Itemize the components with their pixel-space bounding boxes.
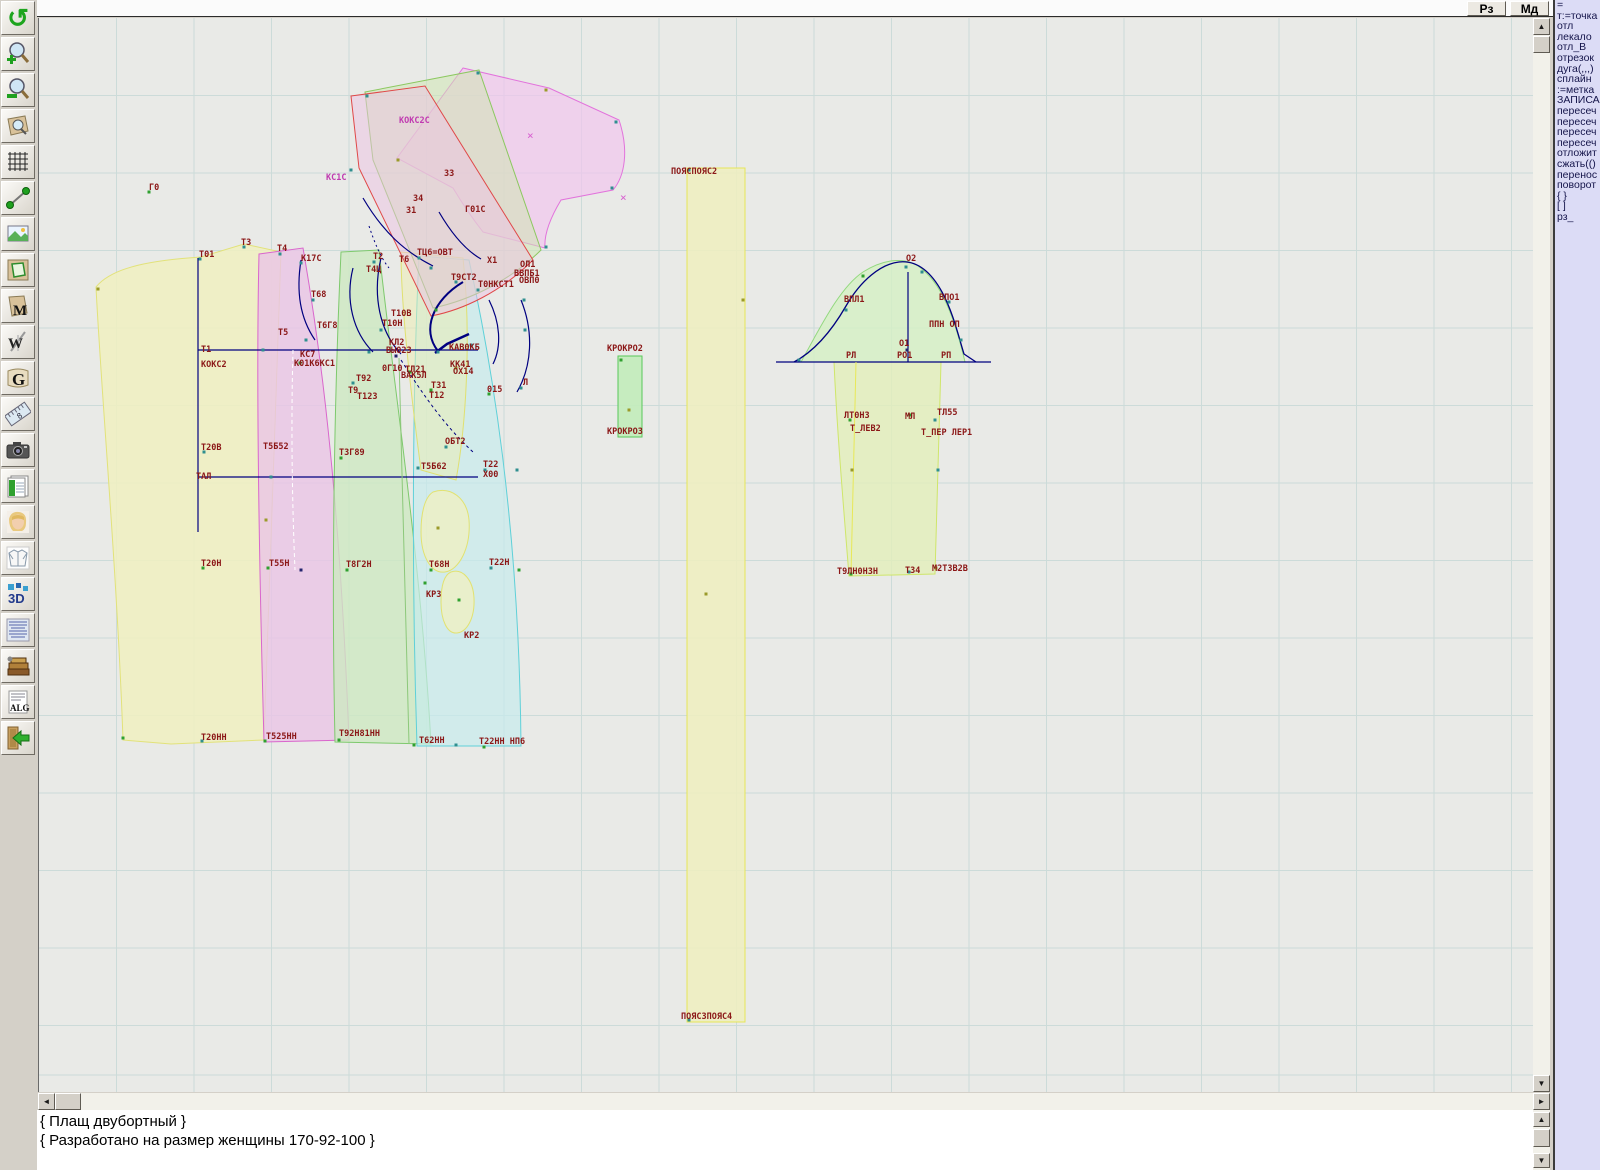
pattern-label: ТЗ4: [905, 566, 920, 576]
zoom-in-button[interactable]: [1, 37, 35, 71]
program-console[interactable]: { Плащ двубортный } { Разработано на раз…: [37, 1110, 1533, 1170]
pattern-label: Г0: [149, 183, 159, 193]
canvas-vertical-scrollbar[interactable]: ▲ ▼: [1533, 18, 1550, 1092]
zoom-piece-icon: [5, 113, 31, 139]
console-scroll-up-button[interactable]: ▲: [1533, 1112, 1550, 1127]
point-marker[interactable]: [455, 744, 458, 747]
alg-document-button[interactable]: ALG: [1, 685, 35, 719]
pattern-label: РО1: [897, 351, 912, 361]
point-marker[interactable]: [350, 169, 353, 172]
pattern-label: КРОКРО2: [607, 344, 643, 354]
pattern-label: ОБТ2: [445, 437, 465, 447]
point-marker[interactable]: [905, 266, 908, 269]
pattern-label: О2: [906, 254, 916, 264]
pattern-label: Т92: [356, 374, 371, 384]
horizontal-scroll-thumb[interactable]: [55, 1093, 81, 1110]
pattern-label: З1: [406, 206, 416, 216]
pattern-label: Т4Ц: [366, 265, 381, 275]
pattern-label: ТЛ55: [937, 408, 957, 418]
measure-segment-icon: [5, 185, 31, 211]
point-marker[interactable]: [615, 121, 618, 124]
pattern-label: Т5: [278, 328, 288, 338]
pattern-label: Т22Н: [489, 558, 509, 568]
image-view-button[interactable]: [1, 217, 35, 251]
pattern-label: Т12: [429, 391, 444, 401]
spreadsheet-icon: [5, 473, 31, 499]
point-marker[interactable]: [437, 351, 440, 354]
pattern-label: Т68Н: [429, 560, 449, 570]
pattern-label: Т20Н: [201, 559, 221, 569]
pattern-drawing: ××Г0Т01Т3Т4К17СКС1СКОКС2СЗ3З4З1Г01СТ2Т6Т…: [39, 18, 1534, 1092]
scroll-down-button[interactable]: ▼: [1533, 1075, 1550, 1092]
sidebar-command-item[interactable]: пересеч: [1555, 106, 1600, 117]
alg-document-icon: ALG: [5, 689, 31, 715]
point-marker[interactable]: [934, 419, 937, 422]
camera-icon: [5, 437, 31, 463]
command-sidebar: =т:=точкаотллекалоотл_Вотрезокдуга(,,,)с…: [1553, 0, 1600, 1170]
svg-text:M: M: [13, 303, 27, 319]
pattern-label: КР2: [464, 631, 479, 641]
pattern-piece-pocket-lower[interactable]: [441, 571, 474, 633]
console-scroll-down-button[interactable]: ▼: [1533, 1153, 1550, 1168]
console-scrollbar[interactable]: ▲ ▼: [1533, 1110, 1550, 1170]
rz-mode-button[interactable]: Рз: [1467, 1, 1506, 16]
point-marker[interactable]: [262, 349, 265, 352]
svg-text:3D: 3D: [8, 591, 25, 606]
pattern-label: ТАЛ: [196, 472, 211, 482]
point-marker[interactable]: [305, 339, 308, 342]
pattern-label: Т01: [199, 250, 214, 260]
pattern-label: Т62НН: [419, 736, 445, 746]
pattern-label: Т68: [311, 290, 326, 300]
pattern-label: Т525НН: [266, 732, 297, 742]
text-list-button[interactable]: [1, 613, 35, 647]
point-marker[interactable]: [545, 89, 548, 92]
point-marker[interactable]: [518, 569, 521, 572]
point-marker[interactable]: [545, 246, 548, 249]
svg-text:W: W: [8, 336, 23, 352]
pattern-label: ЛТ0Н3: [844, 411, 870, 421]
pattern-label: К01К6КС1: [294, 359, 335, 369]
point-marker[interactable]: [921, 271, 924, 274]
svg-text:ALG: ALG: [10, 703, 30, 713]
scroll-g-icon: G: [5, 365, 31, 391]
point-marker[interactable]: [477, 72, 480, 75]
piece-m-button[interactable]: M: [1, 289, 35, 323]
point-marker[interactable]: [742, 299, 745, 302]
pattern-label: ТЦ6=ОВТ: [417, 248, 453, 258]
pattern-label: Г01С: [465, 205, 485, 215]
pattern-piece-sleeve-cap[interactable]: [801, 260, 965, 362]
point-marker[interactable]: [620, 359, 623, 362]
pattern-label: ВЫ023: [386, 346, 412, 356]
camera-button[interactable]: [1, 433, 35, 467]
exit-button[interactable]: [1, 721, 35, 755]
pattern-label: ОВП0: [519, 276, 539, 286]
pattern-label: Т_ПЕР ЛЕР1: [921, 428, 972, 438]
portrait-icon: [5, 509, 31, 535]
point-marker[interactable]: [705, 593, 708, 596]
garment-icon: [5, 545, 31, 571]
point-marker[interactable]: [845, 309, 848, 312]
cross-marker: ×: [527, 129, 534, 142]
point-marker[interactable]: [397, 159, 400, 162]
left-toolbar: ↺ M W G 8 3D ALG: [0, 0, 37, 1170]
point-marker[interactable]: [437, 527, 440, 530]
drafting-canvas[interactable]: ××Г0Т01Т3Т4К17СКС1СКОКС2СЗ3З4З1Г01СТ2Т6Т…: [38, 18, 1533, 1092]
pattern-label: ППН ОП: [929, 320, 960, 330]
garment-button[interactable]: [1, 541, 35, 575]
point-marker[interactable]: [851, 469, 854, 472]
pattern-label: Т8Г2Н: [346, 560, 372, 570]
pattern-label: Т3: [241, 238, 251, 248]
point-marker[interactable]: [424, 582, 427, 585]
pattern-label: Т20В: [201, 443, 221, 453]
point-marker[interactable]: [937, 469, 940, 472]
piece-outline-button[interactable]: [1, 253, 35, 287]
sidebar-command-item[interactable]: рз_: [1555, 212, 1600, 223]
point-marker[interactable]: [413, 744, 416, 747]
pattern-label: Т22: [483, 460, 498, 470]
scroll-up-button[interactable]: ▲: [1533, 18, 1550, 35]
point-marker[interactable]: [368, 351, 371, 354]
point-marker[interactable]: [270, 476, 273, 479]
sidebar-command-item[interactable]: =: [1555, 0, 1600, 11]
console-scroll-thumb[interactable]: [1533, 1129, 1550, 1147]
pattern-label: Т1: [201, 345, 211, 355]
point-marker[interactable]: [430, 267, 433, 270]
point-marker[interactable]: [417, 467, 420, 470]
pattern-label: Т6: [399, 255, 409, 265]
pattern-label: ПОЯСПОЯС2: [671, 167, 717, 177]
pattern-label: 015: [487, 385, 502, 395]
scroll-left-button[interactable]: ◄: [38, 1093, 55, 1110]
point-marker[interactable]: [97, 288, 100, 291]
point-marker[interactable]: [798, 359, 801, 362]
point-marker[interactable]: [366, 95, 369, 98]
pattern-label: КР3: [426, 590, 441, 600]
ruler-button[interactable]: 8: [1, 397, 35, 431]
scroll-g-button[interactable]: G: [1, 361, 35, 395]
pattern-label: Т9ЛН0Н3Н: [837, 567, 878, 577]
piece-m-icon: M: [5, 293, 31, 319]
view-3d-icon: 3D: [5, 581, 31, 607]
portrait-button[interactable]: [1, 505, 35, 539]
piece-outline-icon: [5, 257, 31, 283]
books-button[interactable]: [1, 649, 35, 683]
pattern-piece-belt-strip[interactable]: [687, 168, 745, 1022]
pattern-label: ВПЛ1: [844, 295, 864, 305]
console-line-1: { Плащ двубортный }: [40, 1112, 1533, 1131]
measure-segment-button[interactable]: [1, 181, 35, 215]
zoom-out-button[interactable]: [1, 73, 35, 107]
books-icon: [5, 653, 31, 679]
pattern-label: ПОЯСЗПОЯС4: [681, 1012, 732, 1022]
point-marker[interactable]: [611, 187, 614, 190]
pattern-label: Т10В: [391, 309, 411, 319]
pattern-layers: ××Г0Т01Т3Т4К17СКС1СКОКС2СЗ3З4З1Г01СТ2Т6Т…: [39, 68, 1534, 1075]
pattern-label: МЛ: [905, 412, 915, 422]
top-strip: Рз Мд: [37, 0, 1553, 17]
pattern-label: Т10Н: [382, 319, 402, 329]
pattern-label: Т20НН: [201, 733, 227, 743]
text-list-icon: [5, 617, 31, 643]
pattern-label: Т9СТ2: [451, 273, 477, 283]
zoom-out-icon: [5, 77, 31, 103]
pattern-piece-back-yellow[interactable]: [96, 244, 281, 744]
sidebar-command-item[interactable]: сжать((): [1555, 159, 1600, 170]
grid-icon: [5, 149, 31, 175]
spreadsheet-button[interactable]: [1, 469, 35, 503]
pattern-label: КОКС2: [201, 360, 227, 370]
pattern-label: Т5Б52: [263, 442, 289, 452]
pattern-label: Т0НКСТ1: [478, 280, 514, 290]
point-marker[interactable]: [516, 469, 519, 472]
pattern-label: Т92Н81НН: [339, 729, 380, 739]
md-mode-button[interactable]: Мд: [1510, 1, 1549, 16]
pattern-label: ОХ14: [453, 367, 473, 377]
zoom-piece-button[interactable]: [1, 109, 35, 143]
pattern-label: КС1С: [326, 173, 346, 183]
pattern-piece-sleeve-body[interactable]: [834, 362, 941, 576]
pattern-label: К17С: [301, 254, 321, 264]
pattern-label: Т55Н: [269, 559, 289, 569]
pattern-label: З3: [444, 169, 454, 179]
cross-marker: ×: [620, 191, 627, 204]
pattern-label: Т_ЛЕВ2: [850, 424, 881, 434]
point-marker[interactable]: [122, 737, 125, 740]
pattern-label: Т123: [357, 392, 377, 402]
canvas-horizontal-scrollbar[interactable]: ◄ ►: [38, 1093, 1550, 1110]
undo-rotate-icon: ↺: [7, 5, 29, 31]
console-line-2: { Разработано на размер женщины 170-92-1…: [40, 1131, 1533, 1150]
pattern-label: Л: [523, 378, 528, 388]
vertical-scroll-thumb[interactable]: [1533, 36, 1550, 53]
point-marker[interactable]: [523, 299, 526, 302]
pattern-label: Т6Г8: [317, 321, 337, 331]
pattern-label: РП: [941, 351, 951, 361]
pattern-label: ВПО1: [939, 293, 959, 303]
compass-w-icon: W: [5, 329, 31, 355]
pattern-label: 0Г10: [382, 364, 402, 374]
pattern-label: ВАК5Л: [401, 371, 427, 381]
undo-rotate-button[interactable]: ↺: [1, 1, 35, 35]
grid-button[interactable]: [1, 145, 35, 179]
point-marker[interactable]: [458, 599, 461, 602]
exit-icon: [5, 725, 31, 751]
pattern-label: О1: [899, 339, 909, 349]
application-window: ↺ M W G 8 3D ALG Рз Мд ××Г0Т01Т3Т4К17СКС…: [0, 0, 1600, 1170]
pattern-piece-kro-strip[interactable]: [618, 356, 642, 437]
pattern-label: ТЗГ89: [339, 448, 365, 458]
pattern-label: РЛ: [846, 351, 856, 361]
point-marker[interactable]: [352, 382, 355, 385]
point-marker[interactable]: [524, 329, 527, 332]
point-marker[interactable]: [300, 569, 303, 572]
svg-text:G: G: [12, 370, 25, 389]
pattern-label: КАВ0КБ: [449, 343, 480, 353]
compass-w-button[interactable]: W: [1, 325, 35, 359]
view-3d-button[interactable]: 3D: [1, 577, 35, 611]
pattern-label: Т4: [277, 244, 287, 254]
point-marker[interactable]: [435, 309, 438, 312]
pattern-label: Т31: [431, 381, 446, 391]
sidebar-command-item[interactable]: отрезок: [1555, 53, 1600, 64]
pattern-label: Х00: [483, 470, 498, 480]
zoom-in-icon: [5, 41, 31, 67]
point-marker[interactable]: [265, 519, 268, 522]
pattern-label: Т22НН НП6: [479, 737, 525, 747]
construction-line: [489, 300, 499, 364]
pattern-label: КОКС2С: [399, 116, 430, 126]
point-marker[interactable]: [628, 409, 631, 412]
ruler-icon: 8: [5, 401, 31, 427]
pattern-label: КРОКРО3: [607, 427, 643, 437]
pattern-label: М2ТЗВ2В: [932, 564, 968, 574]
point-marker[interactable]: [862, 275, 865, 278]
image-view-icon: [5, 221, 31, 247]
pattern-label: Т5Б62: [421, 462, 447, 472]
scroll-right-button[interactable]: ►: [1533, 1093, 1550, 1110]
point-marker[interactable]: [960, 339, 963, 342]
pattern-label: Т2: [373, 252, 383, 262]
pattern-label: Х1: [487, 256, 497, 266]
pattern-label: З4: [413, 194, 423, 204]
